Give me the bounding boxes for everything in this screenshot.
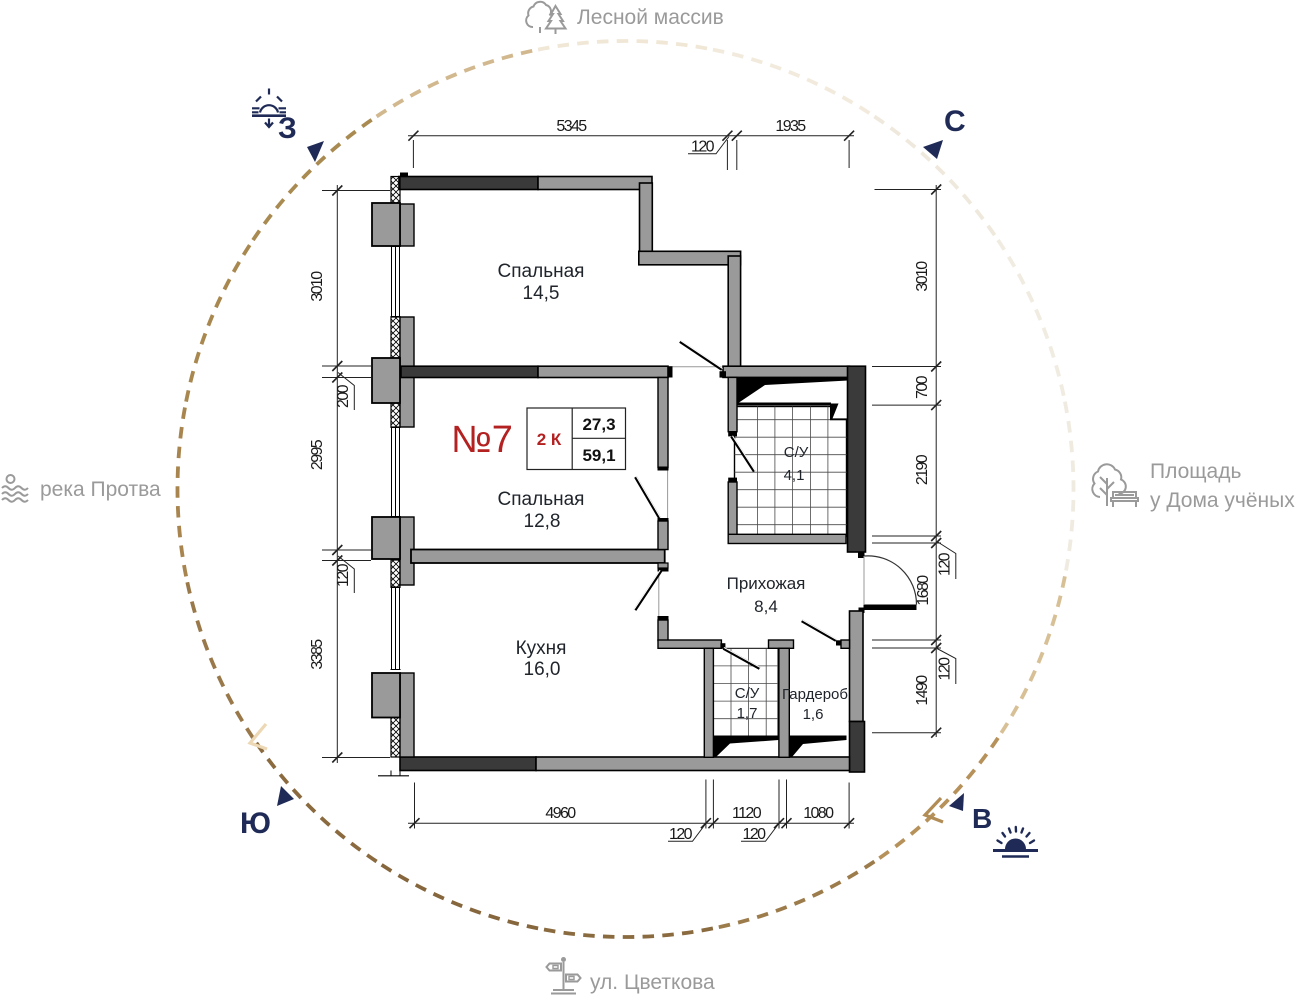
svg-text:3010: 3010 — [914, 261, 931, 292]
svg-text:Гардероб: Гардероб — [782, 686, 848, 703]
svg-text:3010: 3010 — [309, 271, 326, 302]
svg-text:59,1: 59,1 — [582, 446, 615, 465]
svg-text:4,1: 4,1 — [784, 467, 805, 484]
svg-text:В: В — [972, 803, 992, 834]
svg-text:1120: 1120 — [732, 805, 762, 822]
svg-text:8,4: 8,4 — [754, 597, 778, 616]
svg-text:5345: 5345 — [556, 118, 587, 135]
svg-text:Ю: Ю — [240, 807, 271, 840]
svg-text:у Дома учёных: у Дома учёных — [1150, 489, 1295, 512]
svg-text:27,3: 27,3 — [582, 415, 615, 434]
svg-text:Спальная: Спальная — [498, 261, 585, 282]
svg-text:1490: 1490 — [914, 675, 931, 706]
svg-text:3385: 3385 — [309, 639, 326, 670]
svg-text:Кухня: Кухня — [516, 638, 567, 659]
svg-text:4960: 4960 — [545, 805, 576, 822]
svg-text:Площадь: Площадь — [1150, 460, 1241, 483]
svg-text:120: 120 — [743, 826, 767, 843]
svg-text:14,5: 14,5 — [523, 283, 560, 304]
svg-text:120: 120 — [691, 139, 715, 156]
svg-text:120: 120 — [937, 552, 954, 576]
svg-text:С: С — [944, 105, 966, 138]
svg-text:16,0: 16,0 — [524, 659, 561, 680]
svg-text:№7: №7 — [451, 419, 513, 461]
svg-text:120: 120 — [937, 657, 954, 681]
svg-text:1935: 1935 — [775, 118, 806, 135]
svg-text:1,6: 1,6 — [803, 706, 824, 723]
svg-text:река Протва: река Протва — [40, 478, 161, 501]
svg-text:120: 120 — [335, 563, 352, 587]
svg-text:С/У: С/У — [784, 444, 809, 461]
svg-text:2190: 2190 — [914, 454, 931, 485]
svg-text:Спальная: Спальная — [498, 489, 585, 510]
svg-text:Прихожая: Прихожая — [727, 574, 806, 593]
svg-text:2995: 2995 — [309, 439, 326, 470]
svg-text:1680: 1680 — [915, 575, 932, 606]
svg-text:700: 700 — [914, 375, 931, 399]
svg-text:200: 200 — [335, 384, 352, 408]
svg-text:С/У: С/У — [735, 685, 760, 702]
svg-text:120: 120 — [669, 826, 693, 843]
svg-text:2 К: 2 К — [537, 430, 562, 449]
svg-text:1,7: 1,7 — [737, 705, 758, 722]
svg-text:Лесной массив: Лесной массив — [577, 6, 724, 29]
svg-text:1080: 1080 — [803, 805, 834, 822]
svg-text:12,8: 12,8 — [524, 511, 561, 532]
svg-text:ул. Цветкова: ул. Цветкова — [590, 971, 715, 994]
